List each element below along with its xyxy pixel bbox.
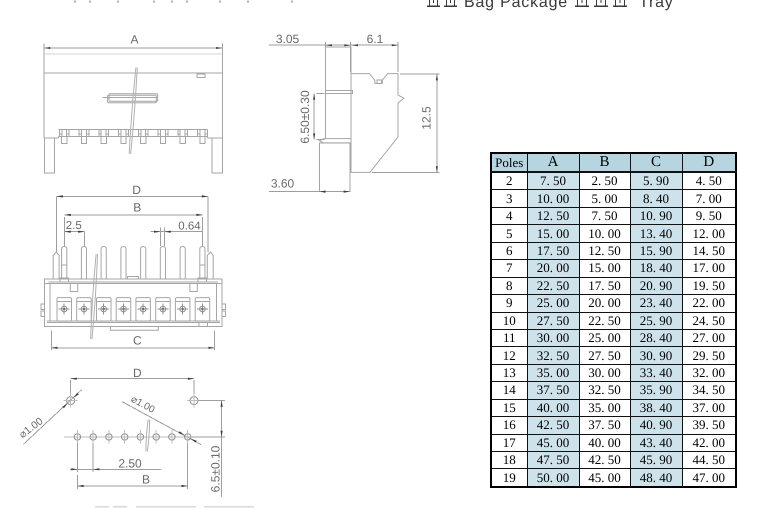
svg-text:D: D: [132, 183, 141, 197]
svg-text:6.5±0.10: 6.5±0.10: [209, 445, 223, 492]
svg-text:C: C: [133, 334, 142, 348]
svg-text:B: B: [133, 201, 141, 215]
svg-text:B: B: [142, 473, 150, 487]
svg-text:Bag Package: Bag Package: [464, 0, 568, 11]
svg-text:A: A: [130, 33, 138, 47]
svg-text:6.1: 6.1: [367, 32, 384, 46]
svg-text:12.5: 12.5: [420, 106, 434, 130]
svg-text:6.50±0.30: 6.50±0.30: [298, 90, 312, 144]
svg-text:3.60: 3.60: [271, 177, 295, 191]
svg-text:D: D: [133, 366, 142, 380]
svg-text:3.05: 3.05: [276, 32, 300, 46]
svg-text:2.50: 2.50: [118, 457, 142, 471]
svg-text:Tray: Tray: [639, 0, 674, 11]
svg-text:0.64: 0.64: [178, 220, 201, 232]
svg-text:2.5: 2.5: [66, 220, 82, 232]
